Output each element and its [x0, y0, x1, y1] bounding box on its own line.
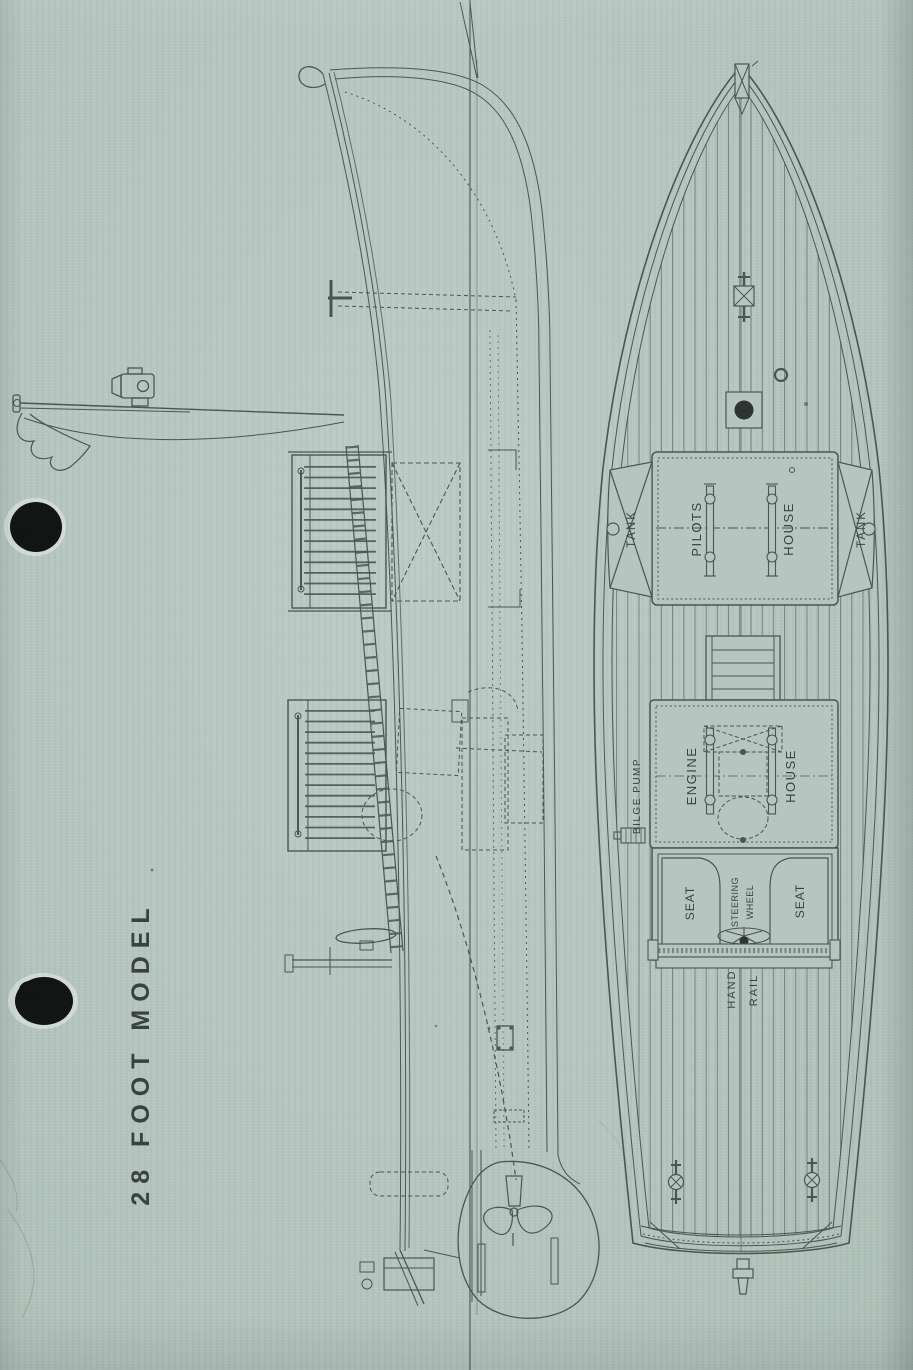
stem-head — [299, 67, 325, 88]
binder-punch-holes — [4, 498, 78, 1029]
propeller — [484, 1176, 552, 1246]
label-engine: ENGINE — [684, 747, 699, 806]
label-wheel: WHEEL — [745, 885, 755, 920]
ladder-hatch — [706, 636, 780, 700]
stern-staff-socket — [733, 1259, 753, 1294]
label-tank-starboard: TANK — [856, 510, 868, 548]
cockpit-side — [285, 927, 396, 975]
stern-assembly — [360, 1150, 599, 1318]
catalog-page: TANK TANK PILOTS HOUSE BILGE PUMP ENGINE… — [0, 0, 913, 1370]
searchlight — [112, 368, 154, 406]
deck-plan-view — [594, 61, 888, 1294]
rudder — [458, 1161, 599, 1318]
label-hand: HAND — [726, 969, 738, 1008]
pilots-house — [652, 452, 838, 605]
propeller-shaft — [436, 856, 524, 1180]
label-steering: STEERING — [730, 877, 740, 927]
label-bilge-pump: BILGE PUMP — [632, 758, 643, 834]
mast-spar — [13, 395, 344, 440]
hand-rail — [648, 940, 840, 968]
label-pilots: PILOTS — [689, 501, 704, 556]
mast-step — [726, 392, 762, 428]
sheer-line — [323, 72, 410, 1251]
punch-hole-top — [10, 502, 62, 552]
label-tank-port: TANK — [626, 510, 638, 548]
engine-vent — [452, 700, 468, 722]
engine-rail-starboard — [767, 728, 777, 814]
bow-and-keel — [330, 68, 580, 1184]
pilot-house-side — [288, 452, 392, 611]
page-title: 28 FOOT MODEL — [127, 900, 155, 1205]
foredeck-details — [328, 280, 516, 317]
paper-creases — [0, 1120, 628, 1318]
label-rail: RAIL — [748, 974, 760, 1006]
waterline-datum — [460, 0, 478, 1370]
boat-blueprint-drawing: TANK TANK PILOTS HOUSE BILGE PUMP ENGINE… — [0, 0, 913, 1370]
label-seat-starboard: SEAT — [793, 884, 807, 918]
engine-rail-port — [705, 728, 715, 814]
engine-house — [650, 700, 838, 848]
samson-post — [328, 280, 352, 317]
label-seat-port: SEAT — [683, 886, 697, 920]
tank-side-dashed — [392, 463, 460, 601]
flag-pennant — [17, 413, 90, 470]
label-pilots-house: HOUSE — [781, 502, 796, 556]
label-engine-house: HOUSE — [783, 749, 798, 803]
side-elevation-view — [13, 0, 599, 1370]
